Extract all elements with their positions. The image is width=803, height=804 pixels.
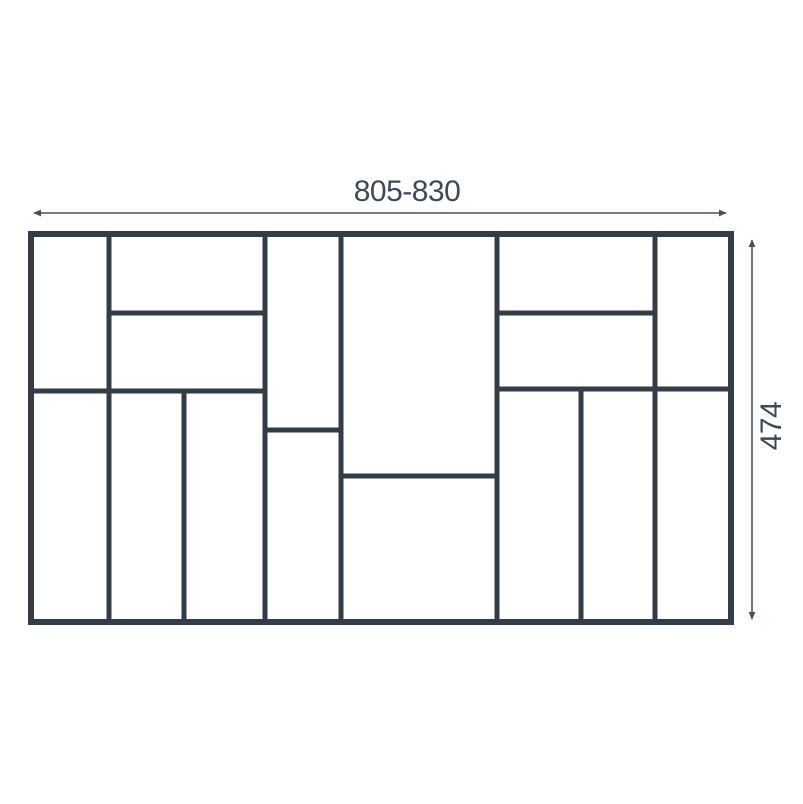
compartment-walls: [31, 234, 731, 622]
tray-layout-svg: [0, 0, 803, 804]
height-dimension-label: 474: [755, 402, 789, 451]
width-dimension-label: 805-830: [354, 175, 461, 209]
cutlery-tray-technical-drawing: 805-830 474: [0, 0, 803, 804]
tray-outline: [31, 234, 731, 622]
dimension-arrows: [34, 213, 752, 619]
